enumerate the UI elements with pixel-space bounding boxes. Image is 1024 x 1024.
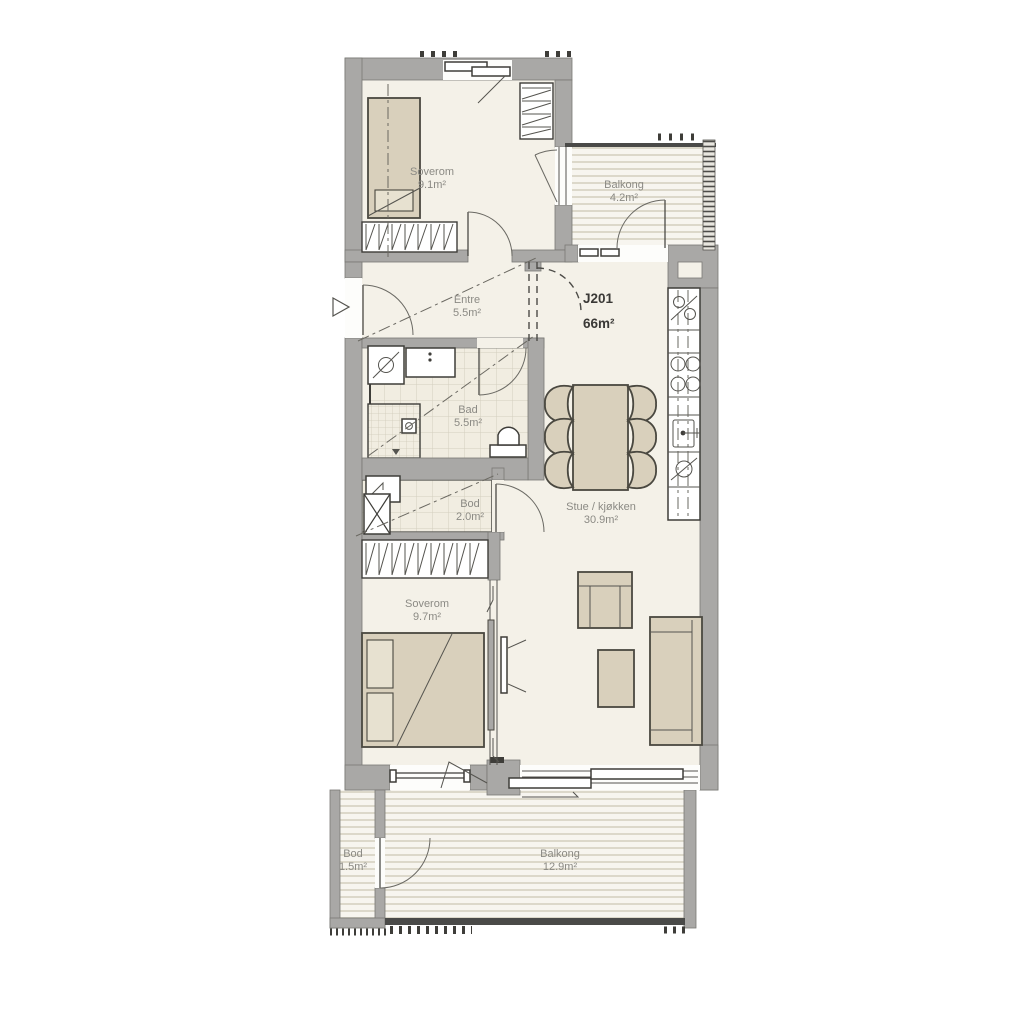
room-area: 5.5m² (453, 307, 481, 320)
room-area: 12.9m² (540, 861, 580, 874)
room-area: 9.1m² (410, 179, 454, 192)
railing-right (703, 140, 715, 250)
kitchen-counter (668, 288, 700, 520)
room-label-soverom-2: Soverom 9.7m² (405, 598, 449, 624)
coffee-table (598, 650, 634, 707)
room-label-bod-interior: Bod 2.0m² (456, 498, 484, 524)
room-label-entre: Entre 5.5m² (453, 294, 481, 320)
room-area: 9.7m² (405, 611, 449, 624)
wardrobe-hatch (362, 540, 488, 578)
bed-double (362, 633, 484, 747)
railing-bottom (385, 918, 685, 925)
room-area: 5.5m² (454, 417, 482, 430)
vanity-sink-icon (406, 348, 455, 377)
room-name: Stue / kjøkken (566, 501, 636, 514)
window-balkong-1 (578, 245, 622, 262)
wall-niche (678, 262, 702, 278)
room-label-stue-kjokken: Stue / kjøkken 30.9m² (566, 501, 636, 527)
room-area: 1.5m² (339, 861, 367, 874)
unit-area: 66m² (583, 316, 615, 331)
armchair (578, 572, 632, 628)
room-name: Bod (456, 498, 484, 511)
room-area: 4.2m² (604, 192, 644, 205)
room-label-soverom-1: Soverom 9.1m² (410, 166, 454, 192)
room-label-balkong-2: Balkong 12.9m² (540, 848, 580, 874)
floor-plan-drawing (0, 0, 1024, 1024)
room-area: 2.0m² (456, 511, 484, 524)
railing-top (565, 143, 716, 147)
room-name: Balkong (540, 848, 580, 861)
room-label-bad: Bad 5.5m² (454, 404, 482, 430)
room-name: Balkong (604, 179, 644, 192)
washing-machine-icon (368, 346, 404, 384)
room-name: Soverom (410, 166, 454, 179)
dining-table (573, 385, 628, 490)
room-label-bod-balkong: Bod 1.5m² (339, 848, 367, 874)
room-name: Bad (454, 404, 482, 417)
room-name: Bod (339, 848, 367, 861)
room-label-balkong-1: Balkong 4.2m² (604, 179, 644, 205)
room-name: Soverom (405, 598, 449, 611)
wardrobe-hatch (520, 83, 553, 139)
room-name: Entre (453, 294, 481, 307)
unit-label: J201 66m² (583, 291, 615, 331)
unit-id: J201 (583, 291, 615, 306)
deck-balkong-2 (340, 790, 684, 918)
wardrobe-hatch (362, 222, 457, 252)
sofa (650, 617, 702, 745)
bed-single (368, 98, 420, 218)
floor-plan: J201 66m² Soverom 9.1m² Balkong 4.2m² En… (0, 0, 1024, 1024)
water-heater-icon (364, 494, 390, 534)
room-area: 30.9m² (566, 514, 636, 527)
